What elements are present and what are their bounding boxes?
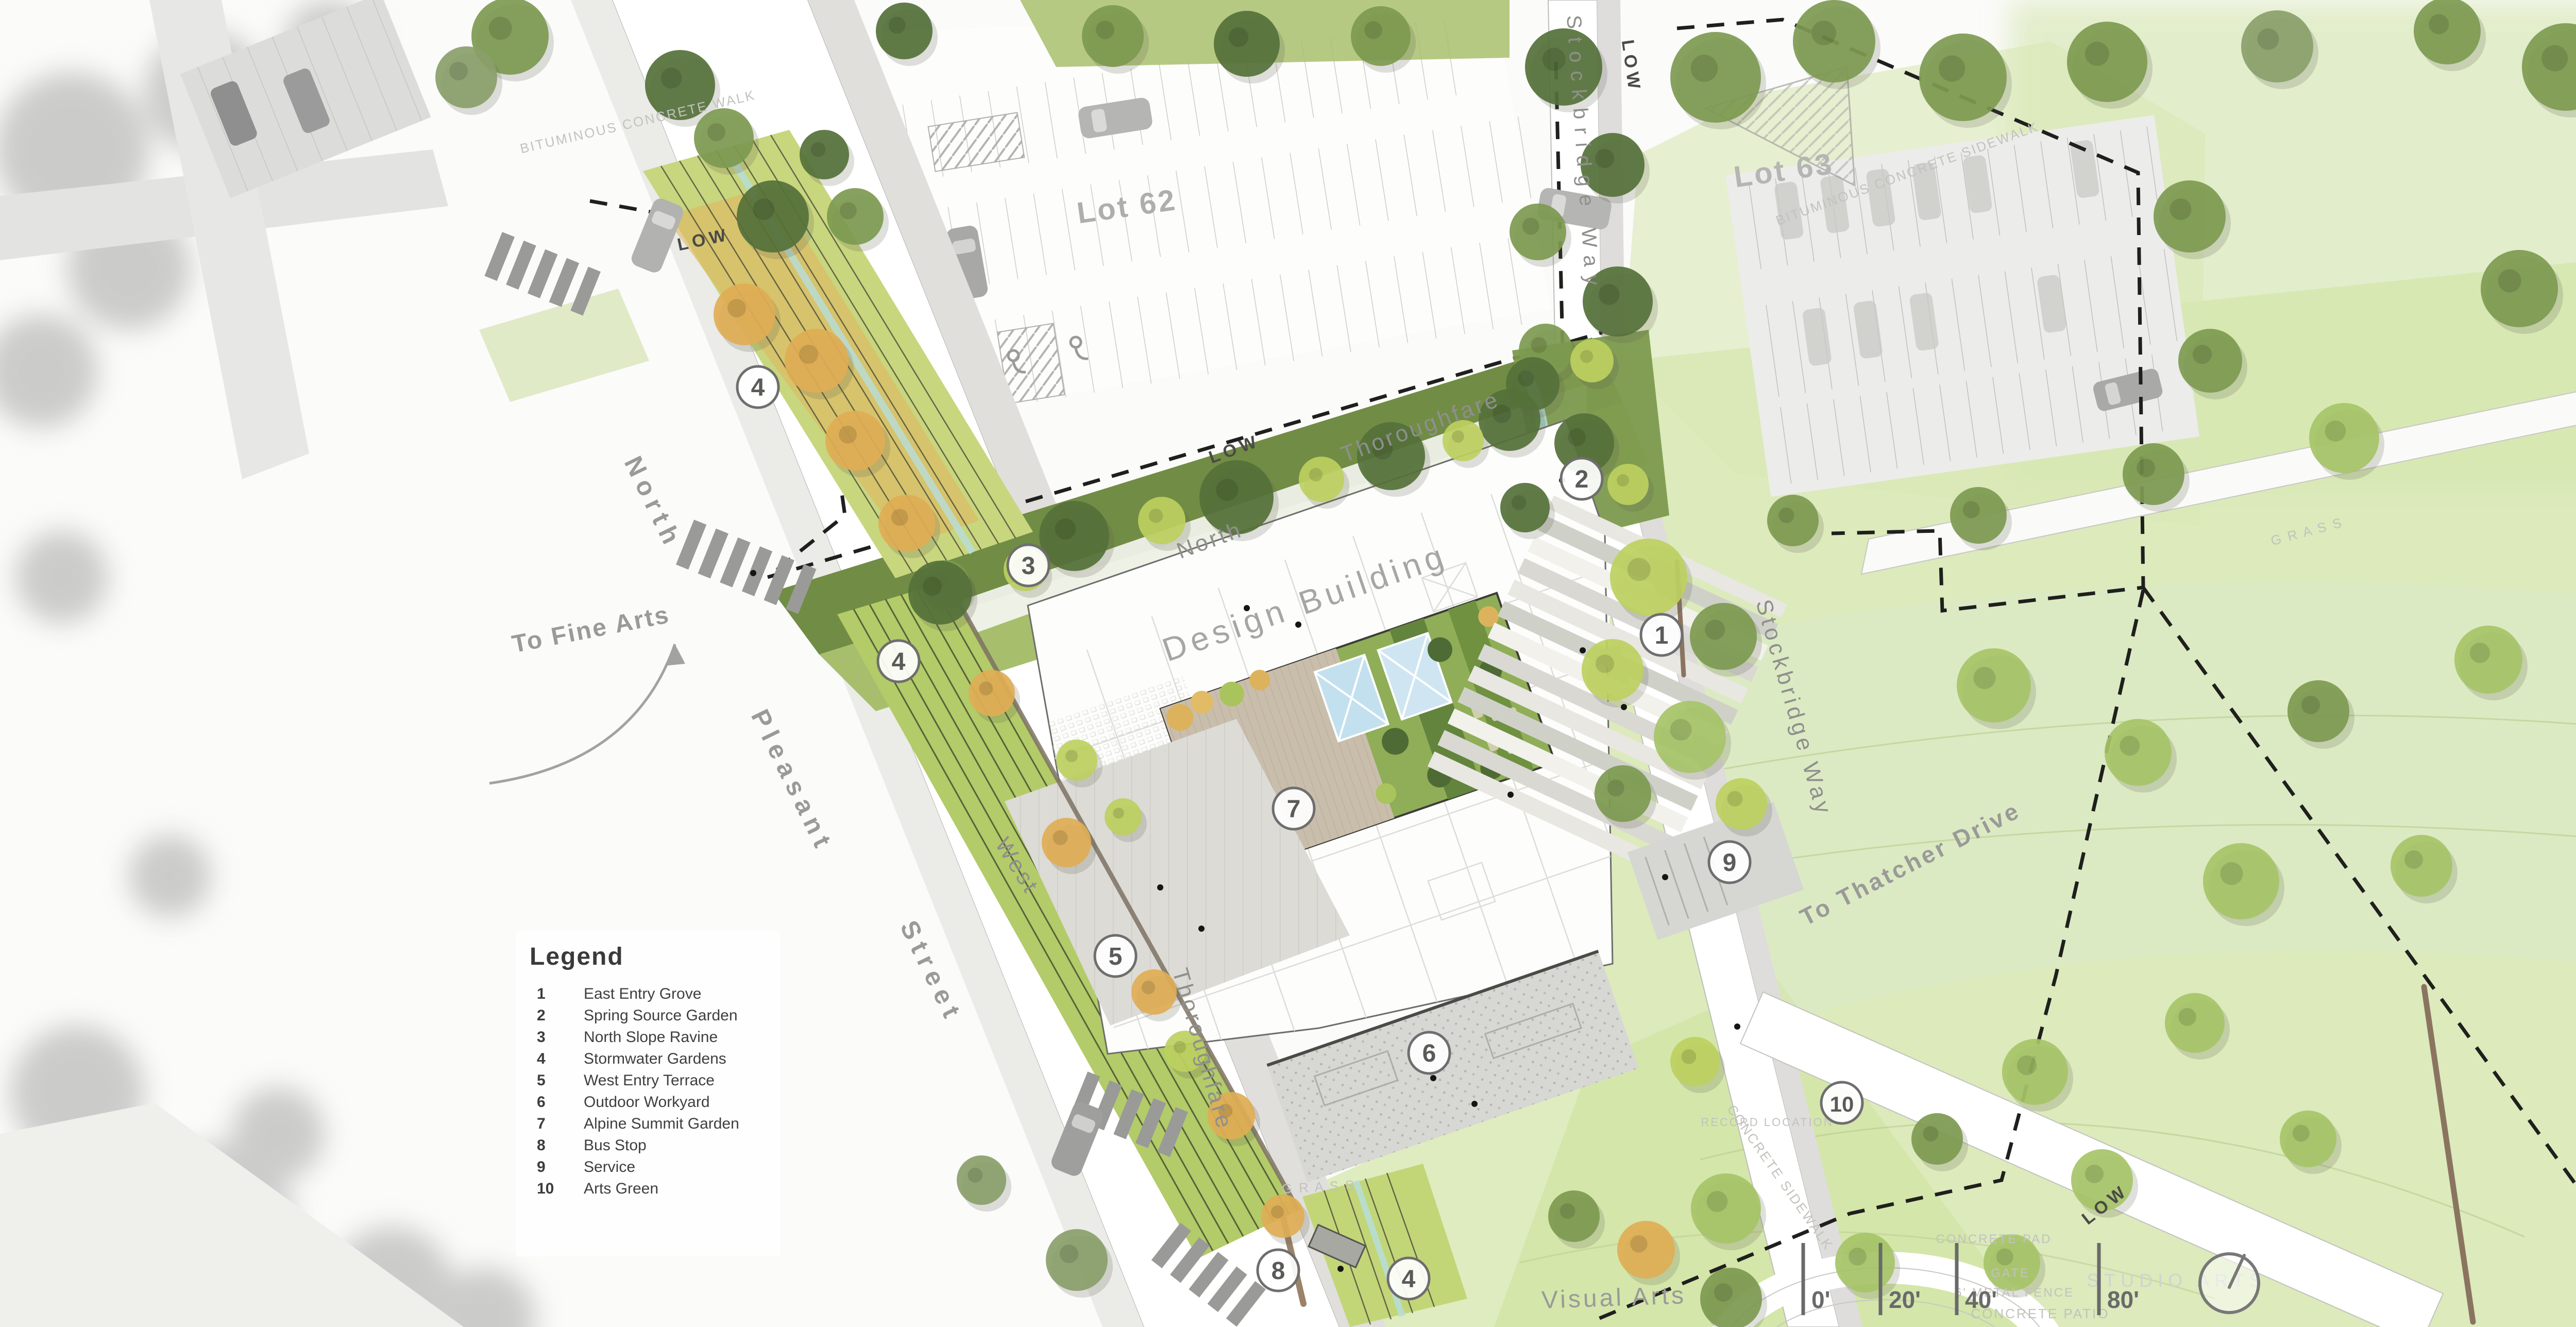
tree-canopy (1046, 1229, 1108, 1291)
marker-4-stormwater-gardens: 4 (737, 366, 778, 408)
marker-4-stormwater-gardens: 4 (878, 641, 919, 682)
legend-item-number: 5 (537, 1072, 546, 1089)
tree-canopy (2067, 22, 2147, 102)
marker-8-bus-stop: 8 (1258, 1250, 1299, 1291)
scale-label-3: 80' (2107, 1286, 2139, 1313)
legend-item-label: Outdoor Workyard (584, 1094, 710, 1111)
legend-item-label: Service (584, 1158, 635, 1175)
legend-item-label: Stormwater Gardens (584, 1050, 726, 1067)
tree-canopy (2241, 10, 2313, 82)
marker-number: 1 (1655, 622, 1669, 649)
tree-canopy (1793, 0, 1875, 82)
tree-canopy (1570, 339, 1614, 382)
legend-item-number: 1 (537, 985, 546, 1002)
legend-title: Legend (530, 943, 624, 970)
survey-annotation-9: RECORD LOCATION (1701, 1116, 1833, 1129)
legend-panel: Legend 1East Entry Grove2Spring Source G… (516, 931, 780, 1256)
tree-canopy (2287, 680, 2349, 742)
tree-canopy (2154, 180, 2226, 253)
tree-canopy (1261, 1195, 1304, 1238)
tree-canopy (1767, 495, 1819, 546)
marker-3-north-slope-ravine: 3 (1008, 545, 1049, 586)
tree-canopy (2165, 993, 2225, 1053)
survey-annotation-3: CONCRETE PAD (1936, 1232, 2052, 1246)
tree-canopy (1214, 11, 1280, 77)
marker-4-stormwater-gardens: 4 (1388, 1258, 1429, 1299)
tree-canopy (908, 561, 972, 625)
marker-6-outdoor-workyard: 6 (1409, 1032, 1450, 1073)
marker-7-alpine-summit-garden: 7 (1273, 788, 1314, 829)
tree-canopy (1919, 33, 2007, 121)
tree-canopy (1957, 648, 2031, 723)
marker-number: 4 (892, 648, 906, 676)
map-label-visual-arts: Visual Arts (1541, 1282, 1687, 1314)
site-plan-page: Lot 62Lot 63Design BuildingNorthPleasant… (0, 0, 2576, 1327)
tree-canopy (2414, 0, 2481, 64)
tree-canopy (1510, 204, 1566, 260)
tree-canopy (1610, 539, 1687, 616)
tree-canopy (1607, 464, 1649, 505)
survey-annotation-7: GATE (1991, 1266, 2030, 1280)
tree-canopy (1950, 487, 2007, 544)
tree-canopy (1351, 6, 1411, 66)
legend-item-number: 2 (537, 1007, 546, 1024)
tree-canopy (737, 180, 809, 253)
legend-item-label: Spring Source Garden (584, 1007, 738, 1024)
tree-canopy (1835, 1233, 1895, 1292)
legend-item-number: 3 (537, 1029, 546, 1046)
marker-number: 10 (1830, 1092, 1854, 1116)
tree-canopy (694, 108, 754, 168)
north-arrow-compass (2200, 1254, 2259, 1313)
tree-canopy (2309, 403, 2379, 473)
tree-canopy (714, 283, 775, 345)
marker-number: 5 (1109, 943, 1123, 970)
legend-item-number: 9 (537, 1158, 546, 1175)
tree-canopy (1506, 357, 1560, 411)
tree-canopy (1056, 740, 1097, 781)
marker-9-service: 9 (1709, 842, 1750, 883)
tree-canopy (957, 1155, 1006, 1205)
marker-10-arts-green: 10 (1821, 1082, 1862, 1123)
legend-item-label: Arts Green (584, 1180, 658, 1197)
tree-canopy (1299, 457, 1344, 502)
tree-canopy (1500, 483, 1550, 532)
tree-canopy (435, 46, 497, 108)
marker-1-east-entry-grove: 1 (1641, 614, 1682, 656)
tree-canopy (827, 188, 884, 245)
tree-canopy (1690, 603, 1757, 670)
tree-canopy (2280, 1111, 2336, 1167)
tree-canopy (2123, 443, 2184, 505)
tree-canopy (969, 670, 1015, 716)
tree-canopy (1911, 1113, 1963, 1165)
tree-canopy (1082, 5, 1144, 67)
legend-item-number: 6 (537, 1094, 546, 1111)
tree-canopy (2002, 1039, 2068, 1105)
marker-number: 6 (1422, 1040, 1436, 1067)
tree-canopy (1654, 701, 1726, 773)
marker-number: 9 (1723, 849, 1737, 877)
tree-canopy (2391, 835, 2452, 897)
tree-canopy (1105, 798, 1142, 835)
legend-item-number: 10 (537, 1180, 554, 1197)
tree-canopy (785, 329, 849, 393)
tree-canopy (2481, 250, 2558, 327)
tree-canopy (1670, 1037, 1720, 1086)
legend-item-label: West Entry Terrace (584, 1072, 715, 1089)
marker-number: 8 (1272, 1257, 1285, 1285)
marker-2-spring-source-garden: 2 (1561, 458, 1602, 499)
marker-number: 4 (751, 374, 765, 401)
marker-number: 3 (1022, 552, 1036, 580)
tree-canopy (1548, 1190, 1600, 1242)
legend-item-label: Bus Stop (584, 1137, 647, 1154)
scale-label-2: 40' (1965, 1286, 1997, 1313)
legend-item-number: 7 (537, 1115, 546, 1132)
tree-canopy (1042, 818, 1091, 867)
legend-item-label: North Slope Ravine (584, 1029, 718, 1046)
tree-canopy (2105, 719, 2172, 786)
tree-canopy (1595, 765, 1651, 822)
legend-item-number: 8 (537, 1137, 546, 1154)
marker-number: 7 (1287, 796, 1301, 823)
legend-item-label: East Entry Grove (584, 985, 701, 1002)
tree-canopy (1138, 497, 1185, 544)
marker-number: 4 (1402, 1266, 1416, 1293)
site-plan-canvas: Lot 62Lot 63Design BuildingNorthPleasant… (0, 0, 2576, 1327)
scale-label-1: 20' (1889, 1286, 1921, 1313)
tree-canopy (1582, 639, 1643, 701)
tree-canopy (1617, 1221, 1675, 1279)
marker-number: 2 (1575, 466, 1589, 493)
tree-canopy (800, 130, 849, 179)
tree-canopy (2178, 329, 2242, 393)
marker-5-west-entry-terrace: 5 (1095, 935, 1136, 977)
tree-canopy (1691, 1173, 1761, 1244)
tree-canopy (878, 495, 935, 551)
tree-canopy (1716, 778, 1767, 830)
scale-label-0: 0' (1811, 1286, 1831, 1313)
tree-canopy (1670, 32, 1761, 123)
legend-item-number: 4 (537, 1050, 546, 1067)
tree-canopy (825, 411, 885, 471)
legend-item-label: Alpine Summit Garden (584, 1115, 739, 1132)
tree-canopy (876, 3, 933, 59)
tree-canopy (2203, 843, 2279, 919)
tree-canopy (2454, 626, 2522, 694)
